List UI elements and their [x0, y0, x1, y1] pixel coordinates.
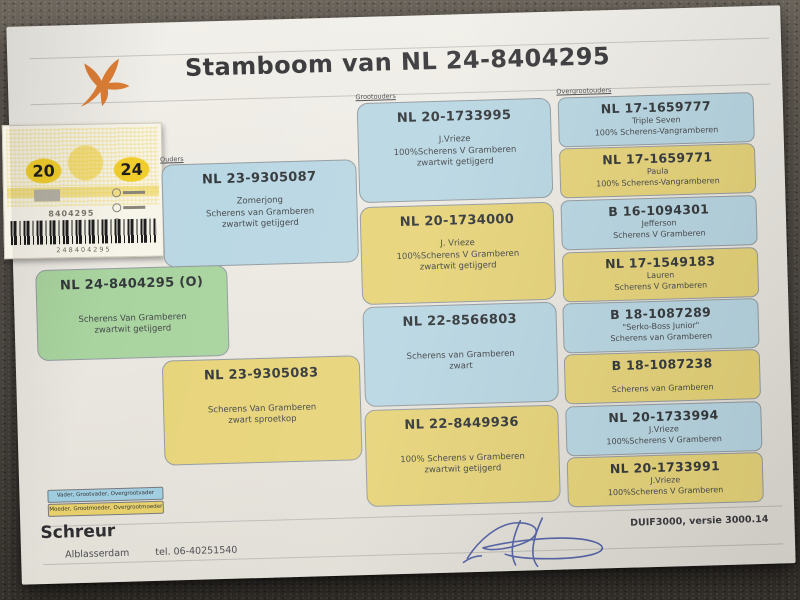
software-version: DUIF3000, versie 3000.14	[630, 514, 768, 529]
pedigree-sheet: Stamboom van NL 24-8404295 20 24 8404295…	[6, 5, 795, 584]
pedigree-box-mother: NL 23-9305083 Scherens Van Gramberen zwa…	[162, 355, 363, 465]
pedigree-box-grandparent-3: NL 22-8566803 Scherens van Gramberen zwa…	[362, 302, 559, 407]
page-title: Stamboom van NL 24-8404295	[157, 41, 638, 82]
barcode	[10, 219, 156, 246]
card-stamp-smudge	[34, 189, 60, 201]
pedigree-box-grandparent-4: NL 22-8449936 100% Scherens v Gramberen …	[364, 405, 561, 507]
circle-icon	[112, 203, 121, 212]
pedigree-box-greatgrandparent-1: NL 17-1659777 Triple Seven 100% Scherens…	[558, 92, 755, 147]
barcode-number: 248404295	[5, 244, 163, 255]
pedigree-box-grandparent-2: NL 20-1734000 J. Vrieze 100%Scherens V G…	[360, 202, 557, 305]
circle-icon	[112, 188, 121, 197]
pedigree-box-grandparent-1: NL 20-1733995 J.Vrieze 100%Scherens V Gr…	[357, 98, 554, 203]
ring-number: NL 20-1733995	[358, 107, 550, 127]
ring-number: NL 24-8404295 (O)	[36, 274, 226, 294]
column-label-parents: Ouders	[160, 155, 184, 164]
pedigree-box-greatgrandparent-8: NL 20-1733991 J.Vrieze 100%Scherens V Gr…	[567, 452, 764, 507]
column-label-greatgrandparents: Overgrootouders	[556, 86, 611, 96]
pedigree-box-greatgrandparent-2: NL 17-1659771 Paula 100% Scherens-Vangra…	[559, 143, 756, 198]
breeder-phone: tel. 06-40251540	[155, 545, 237, 558]
ring-number: NL 22-8449936	[365, 414, 557, 434]
pedigree-box-greatgrandparent-6: B 18-1087238 Scherens van Gramberen	[564, 349, 761, 404]
pedigree-box-father: NL 23-9305087 Zomerjong Scherens van Gra…	[161, 159, 359, 267]
signature	[458, 510, 624, 571]
column-label-grandparents: Grootouders	[355, 92, 396, 101]
pedigree-box-greatgrandparent-4: NL 17-1549183 Lauren Scherens V Grambere…	[562, 247, 759, 302]
pedigree-box-greatgrandparent-7: NL 20-1733994 J.Vrieze 100%Scherens V Gr…	[565, 401, 762, 456]
card-symbol-row	[112, 203, 145, 213]
ring-number: NL 20-1734000	[361, 211, 553, 231]
ring-number: NL 22-8566803	[364, 311, 556, 331]
ring-number: NL 23-9305083	[163, 364, 359, 384]
ring-card-sticker: 20 24 8404295 248404295	[2, 122, 164, 259]
pedigree-box-greatgrandparent-3: B 16-1094301 Jefferson Scherens V Grambe…	[560, 195, 757, 250]
pigeon-logo-icon	[73, 51, 135, 115]
breeder-name: Schreur	[40, 521, 115, 543]
card-symbol-row	[112, 188, 145, 198]
rule-mark	[123, 206, 145, 209]
breeder-city: Alblasserdam	[65, 548, 130, 561]
pedigree-box-greatgrandparent-5: B 18-1087289 "Serko-Boss Junior" Scheren…	[562, 298, 759, 353]
breeder-info: Alblasserdamtel. 06-40251540	[65, 545, 238, 561]
legend: Vader, Grootvader, Overgrootvader Moeder…	[47, 487, 164, 518]
rule-mark	[123, 191, 145, 194]
ring-number: NL 23-9305087	[163, 168, 356, 188]
pedigree-box-subject: NL 24-8404295 (O) Scherens Van Gramberen…	[35, 265, 229, 361]
legend-female-line: Moeder, Grootmoeder, Overgrootmoeder	[48, 501, 164, 517]
photo-background-carpet: Stamboom van NL 24-8404295 20 24 8404295…	[0, 0, 800, 600]
